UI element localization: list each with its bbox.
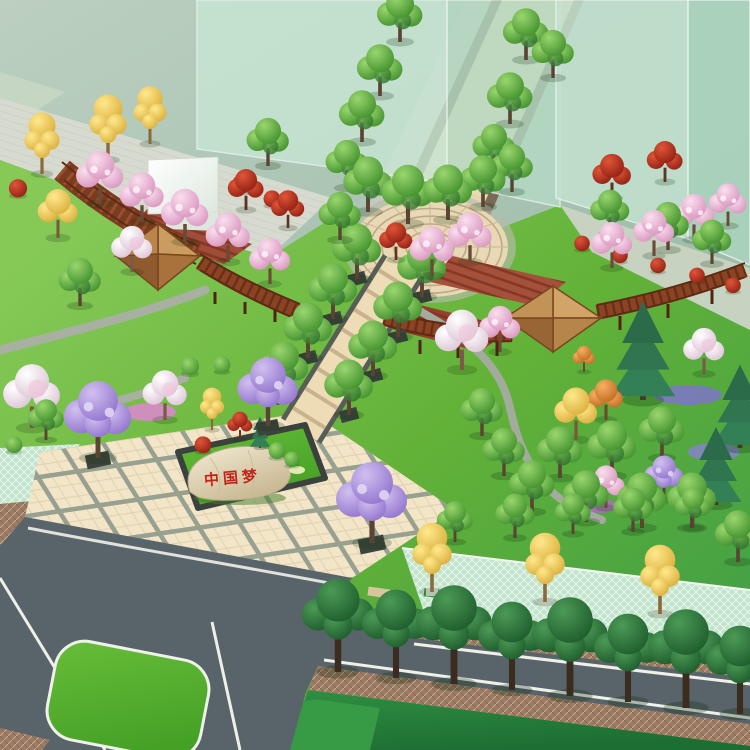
red-shrub xyxy=(650,258,666,275)
red-shrub xyxy=(725,278,741,295)
red-shrub xyxy=(689,268,705,285)
red-shrub xyxy=(574,236,590,253)
shrub xyxy=(6,436,23,454)
red-shrub xyxy=(9,179,27,199)
red-leaf-shrub xyxy=(195,436,212,454)
shrub xyxy=(269,442,286,460)
shrub xyxy=(214,356,231,374)
rendering-canvas: 中国梦 xyxy=(0,0,750,750)
shrub xyxy=(181,357,199,377)
park-rendering: 中国梦 xyxy=(0,0,750,750)
shrub xyxy=(284,452,299,469)
